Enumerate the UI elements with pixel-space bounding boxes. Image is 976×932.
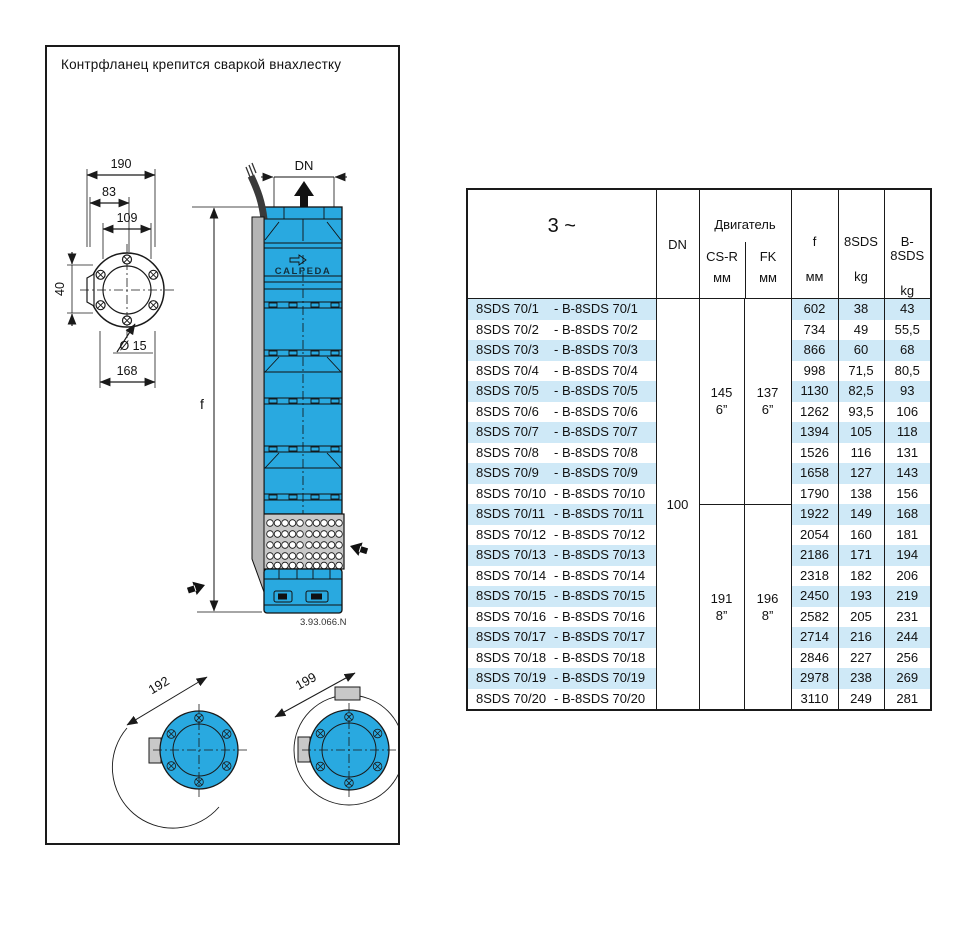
svg-text:40: 40 <box>53 282 67 296</box>
cell-kg-8sds: 160 <box>838 525 884 546</box>
model-b8sds: - B-8SDS 70/18 <box>554 648 645 669</box>
cell-kg-b8sds: 93 <box>884 381 931 402</box>
cell-f: 1262 <box>791 402 838 423</box>
cell-kg-8sds: 216 <box>838 627 884 648</box>
model-8sds: 8SDS 70/7 <box>476 422 539 443</box>
cell-f: 1790 <box>791 484 838 505</box>
cell-model: 8SDS 70/15- B-8SDS 70/15 <box>467 586 656 607</box>
csr-value: 145 <box>700 384 744 401</box>
cell-model: 8SDS 70/14- B-8SDS 70/14 <box>467 566 656 587</box>
cell-f: 3110 <box>791 689 838 711</box>
model-8sds: 8SDS 70/1 <box>476 299 539 320</box>
cell-kg-8sds: 82,5 <box>838 381 884 402</box>
cell-kg-8sds: 105 <box>838 422 884 443</box>
cell-kg-8sds: 171 <box>838 545 884 566</box>
header-motor: Двигатель CS-R мм FK мм <box>699 189 791 299</box>
model-b8sds: - B-8SDS 70/14 <box>554 566 645 587</box>
cell-f: 1526 <box>791 443 838 464</box>
model-8sds: 8SDS 70/18 <box>476 648 546 669</box>
cell-kg-b8sds: 118 <box>884 422 931 443</box>
model-8sds: 8SDS 70/13 <box>476 545 546 566</box>
dimension-190: 190 <box>87 157 155 247</box>
fk-value: 196 <box>745 590 791 607</box>
cell-f: 1394 <box>791 422 838 443</box>
cell-model: 8SDS 70/8- B-8SDS 70/8 <box>467 443 656 464</box>
dimension-hole-diameter: Ø 15 <box>113 324 153 353</box>
model-b8sds: - B-8SDS 70/8 <box>554 443 638 464</box>
cell-f: 2186 <box>791 545 838 566</box>
cell-kg-8sds: 71,5 <box>838 361 884 382</box>
header-dn: DN <box>656 189 699 299</box>
cell-kg-b8sds: 168 <box>884 504 931 525</box>
cell-model: 8SDS 70/1- B-8SDS 70/1 <box>467 299 656 320</box>
table-row: 8SDS 70/11- B-8SDS 70/111918”1968”192214… <box>467 504 931 525</box>
cell-kg-8sds: 238 <box>838 668 884 689</box>
spec-table: 3 ~ DN Двигатель CS-R мм F <box>466 188 932 711</box>
cell-model: 8SDS 70/7- B-8SDS 70/7 <box>467 422 656 443</box>
cell-kg-b8sds: 231 <box>884 607 931 628</box>
model-b8sds: - B-8SDS 70/3 <box>554 340 638 361</box>
model-8sds: 8SDS 70/4 <box>476 361 539 382</box>
cell-kg-b8sds: 219 <box>884 586 931 607</box>
cell-model: 8SDS 70/16- B-8SDS 70/16 <box>467 607 656 628</box>
fk-size: 6” <box>745 401 791 418</box>
model-b8sds: - B-8SDS 70/5 <box>554 381 638 402</box>
model-b8sds: - B-8SDS 70/6 <box>554 402 638 423</box>
svg-text:109: 109 <box>117 211 138 225</box>
model-b8sds: - B-8SDS 70/7 <box>554 422 638 443</box>
csr-size: 8” <box>700 607 744 624</box>
header-8sds: 8SDS kg <box>838 189 884 299</box>
model-b8sds: - B-8SDS 70/10 <box>554 484 645 505</box>
datasheet-page: Контрфланец крепится сваркой внахлестку … <box>0 0 976 932</box>
table-row: 8SDS 70/1- B-8SDS 70/11001456”1376”60238… <box>467 299 931 320</box>
cell-kg-b8sds: 43 <box>884 299 931 320</box>
table-header: 3 ~ DN Двигатель CS-R мм F <box>467 189 931 299</box>
model-8sds: 8SDS 70/15 <box>476 586 546 607</box>
model-8sds: 8SDS 70/10 <box>476 484 546 505</box>
cell-kg-b8sds: 281 <box>884 689 931 711</box>
model-8sds: 8SDS 70/12 <box>476 525 546 546</box>
cell-f: 2450 <box>791 586 838 607</box>
model-8sds: 8SDS 70/8 <box>476 443 539 464</box>
cell-model: 8SDS 70/20- B-8SDS 70/20 <box>467 689 656 711</box>
svg-text:f: f <box>200 396 204 412</box>
top-tab <box>335 687 360 700</box>
cell-kg-b8sds: 55,5 <box>884 320 931 341</box>
cell-f: 734 <box>791 320 838 341</box>
header-b8sds: B-8SDS kg <box>884 189 931 299</box>
model-b8sds: - B-8SDS 70/13 <box>554 545 645 566</box>
model-b8sds: - B-8SDS 70/19 <box>554 668 645 689</box>
model-8sds: 8SDS 70/2 <box>476 320 539 341</box>
header-csr: CS-R мм <box>700 242 745 298</box>
header-fk: FK мм <box>745 242 791 298</box>
drawing-panel: Контрфланец крепится сваркой внахлестку … <box>45 45 400 845</box>
cell-kg-8sds: 127 <box>838 463 884 484</box>
model-b8sds: - B-8SDS 70/20 <box>554 689 645 710</box>
cell-model: 8SDS 70/4- B-8SDS 70/4 <box>467 361 656 382</box>
pump-technical-drawing: 190 83 109 <box>47 47 398 843</box>
bottom-view-192: 192 <box>112 673 247 828</box>
cell-f: 1130 <box>791 381 838 402</box>
model-8sds: 8SDS 70/14 <box>476 566 546 587</box>
svg-text:Ø 15: Ø 15 <box>119 339 146 353</box>
motor-section <box>264 569 342 613</box>
cell-f: 2846 <box>791 648 838 669</box>
cell-fk: 1376” <box>744 299 791 505</box>
model-8sds: 8SDS 70/6 <box>476 402 539 423</box>
cell-fk: 1968” <box>744 504 791 710</box>
drawing-number: 3.93.066.N <box>300 617 347 628</box>
model-b8sds: - B-8SDS 70/12 <box>554 525 645 546</box>
model-8sds: 8SDS 70/19 <box>476 668 546 689</box>
model-8sds: 8SDS 70/5 <box>476 381 539 402</box>
cell-kg-8sds: 138 <box>838 484 884 505</box>
cell-kg-b8sds: 206 <box>884 566 931 587</box>
cable-guard-tab <box>298 737 310 762</box>
cell-kg-8sds: 60 <box>838 340 884 361</box>
fk-value: 137 <box>745 384 791 401</box>
table-body: 8SDS 70/1- B-8SDS 70/11001456”1376”60238… <box>467 299 931 711</box>
model-8sds: 8SDS 70/9 <box>476 463 539 484</box>
header-f: f мм <box>791 189 838 299</box>
svg-text:190: 190 <box>111 157 132 171</box>
cell-f: 866 <box>791 340 838 361</box>
model-8sds: 8SDS 70/11 <box>476 504 545 525</box>
cable <box>246 163 264 592</box>
cell-csr: 1456” <box>699 299 744 505</box>
cell-kg-b8sds: 80,5 <box>884 361 931 382</box>
cell-model: 8SDS 70/17- B-8SDS 70/17 <box>467 627 656 648</box>
model-b8sds: - B-8SDS 70/15 <box>554 586 645 607</box>
cell-kg-b8sds: 156 <box>884 484 931 505</box>
model-8sds: 8SDS 70/3 <box>476 340 539 361</box>
csr-value: 191 <box>700 590 744 607</box>
cell-csr: 1918” <box>699 504 744 710</box>
cell-f: 2054 <box>791 525 838 546</box>
pump-side-view: DN f <box>186 158 370 628</box>
svg-text:168: 168 <box>117 364 138 378</box>
cell-model: 8SDS 70/6- B-8SDS 70/6 <box>467 402 656 423</box>
cell-f: 1658 <box>791 463 838 484</box>
cell-kg-8sds: 93,5 <box>838 402 884 423</box>
cell-kg-8sds: 116 <box>838 443 884 464</box>
csr-size: 6” <box>700 401 744 418</box>
cell-model: 8SDS 70/19- B-8SDS 70/19 <box>467 668 656 689</box>
cell-f: 602 <box>791 299 838 320</box>
model-8sds: 8SDS 70/16 <box>476 607 546 628</box>
inlet-arrow-right <box>348 539 369 558</box>
strainer <box>262 514 344 569</box>
cell-kg-8sds: 38 <box>838 299 884 320</box>
fk-size: 8” <box>745 607 791 624</box>
inlet-arrow-left <box>186 578 207 597</box>
cell-f: 2714 <box>791 627 838 648</box>
cell-kg-8sds: 149 <box>838 504 884 525</box>
model-b8sds: - B-8SDS 70/11 <box>554 504 644 525</box>
model-b8sds: - B-8SDS 70/4 <box>554 361 638 382</box>
cell-kg-8sds: 227 <box>838 648 884 669</box>
spec-table-wrap: 3 ~ DN Двигатель CS-R мм F <box>466 188 932 711</box>
cell-model: 8SDS 70/3- B-8SDS 70/3 <box>467 340 656 361</box>
svg-text:83: 83 <box>102 185 116 199</box>
cell-model: 8SDS 70/12- B-8SDS 70/12 <box>467 525 656 546</box>
svg-text:192: 192 <box>146 673 172 697</box>
model-b8sds: - B-8SDS 70/2 <box>554 320 638 341</box>
svg-text:199: 199 <box>293 669 319 693</box>
cell-kg-b8sds: 244 <box>884 627 931 648</box>
cell-model: 8SDS 70/5- B-8SDS 70/5 <box>467 381 656 402</box>
flange-top-view: 190 83 109 <box>53 157 175 388</box>
cell-kg-b8sds: 68 <box>884 340 931 361</box>
cell-dn: 100 <box>656 299 699 711</box>
cable-guard-tab <box>149 738 161 763</box>
cell-kg-8sds: 249 <box>838 689 884 711</box>
bottom-view-199: 199 <box>275 669 398 805</box>
cell-kg-b8sds: 131 <box>884 443 931 464</box>
svg-text:DN: DN <box>295 158 314 173</box>
cell-f: 2978 <box>791 668 838 689</box>
cell-kg-b8sds: 256 <box>884 648 931 669</box>
flow-up-arrow <box>294 181 314 208</box>
cell-model: 8SDS 70/10- B-8SDS 70/10 <box>467 484 656 505</box>
cell-model: 8SDS 70/11- B-8SDS 70/11 <box>467 504 656 525</box>
cell-model: 8SDS 70/2- B-8SDS 70/2 <box>467 320 656 341</box>
cell-f: 998 <box>791 361 838 382</box>
model-b8sds: - B-8SDS 70/17 <box>554 627 645 648</box>
model-8sds: 8SDS 70/17 <box>476 627 546 648</box>
cell-kg-b8sds: 194 <box>884 545 931 566</box>
model-8sds: 8SDS 70/20 <box>476 689 546 710</box>
cell-kg-8sds: 205 <box>838 607 884 628</box>
cell-f: 1922 <box>791 504 838 525</box>
cell-model: 8SDS 70/9- B-8SDS 70/9 <box>467 463 656 484</box>
cell-kg-b8sds: 181 <box>884 525 931 546</box>
model-b8sds: - B-8SDS 70/9 <box>554 463 638 484</box>
cell-kg-b8sds: 269 <box>884 668 931 689</box>
cell-kg-8sds: 49 <box>838 320 884 341</box>
cell-kg-8sds: 182 <box>838 566 884 587</box>
model-b8sds: - B-8SDS 70/1 <box>554 299 638 320</box>
header-phase: 3 ~ <box>467 189 656 299</box>
cell-model: 8SDS 70/13- B-8SDS 70/13 <box>467 545 656 566</box>
cell-f: 2582 <box>791 607 838 628</box>
model-b8sds: - B-8SDS 70/16 <box>554 607 645 628</box>
cell-kg-b8sds: 143 <box>884 463 931 484</box>
cell-kg-b8sds: 106 <box>884 402 931 423</box>
cell-kg-8sds: 193 <box>838 586 884 607</box>
cell-model: 8SDS 70/18- B-8SDS 70/18 <box>467 648 656 669</box>
cell-f: 2318 <box>791 566 838 587</box>
